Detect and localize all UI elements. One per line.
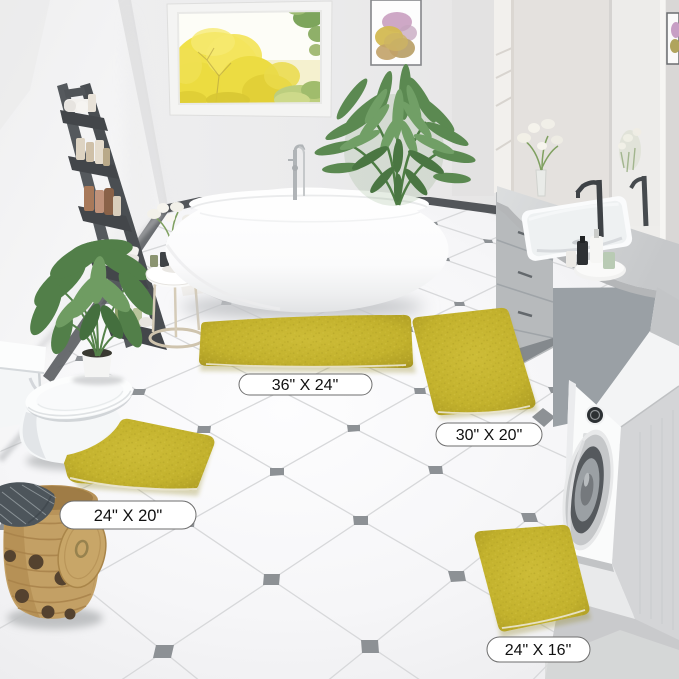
svg-text:36" X 24": 36" X 24"	[272, 377, 339, 394]
svg-text:30" X 20": 30" X 20"	[456, 427, 523, 444]
svg-text:24" X 16": 24" X 16"	[505, 642, 572, 659]
svg-text:24" X 20": 24" X 20"	[94, 507, 163, 525]
